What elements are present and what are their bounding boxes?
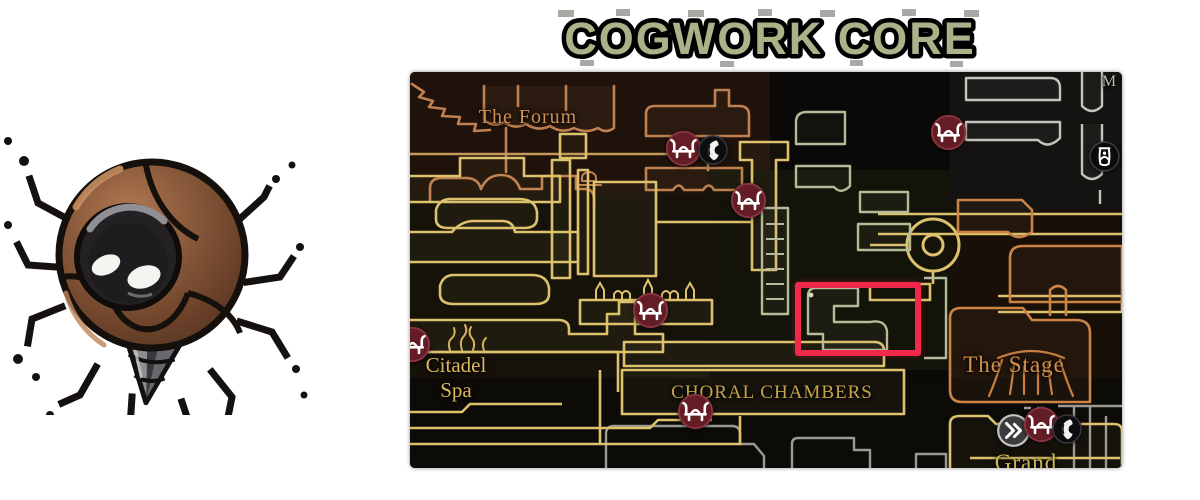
title-text: COGWORK CORE [564, 13, 976, 64]
cogwork-clapper-art [0, 95, 320, 415]
map-label-edge-m: M [1102, 72, 1116, 91]
map-overlays: The ForumCitadelSpaCHORAL CHAMBERSThe St… [410, 72, 1122, 468]
marker-shrine-icon [1088, 140, 1121, 173]
marker-bench-icon [730, 182, 767, 219]
marker-bench-icon [677, 393, 714, 430]
marker-npc-icon [697, 134, 729, 166]
title-art: COGWORK CORE [520, 4, 1020, 70]
map-label-citadel-spa: CitadelSpa [426, 353, 487, 403]
character-face [77, 206, 179, 308]
marker-bench-icon [930, 114, 967, 151]
map-label-grand: Grand [995, 449, 1057, 468]
marker-npc-icon [1051, 413, 1083, 445]
page: COGWORK CORE [0, 0, 1200, 500]
marker-bench-icon [632, 292, 669, 329]
page-title: COGWORK CORE [520, 4, 1020, 70]
map-label-the-forum: The Forum [479, 105, 577, 129]
marker-bench-icon [410, 326, 431, 363]
cogwork-core-map: The ForumCitadelSpaCHORAL CHAMBERSThe St… [410, 72, 1122, 468]
highlight-box [795, 282, 921, 356]
map-label-the-stage: The Stage [963, 351, 1065, 379]
marker-bench-icon [665, 130, 702, 167]
character-illustration [0, 95, 320, 415]
